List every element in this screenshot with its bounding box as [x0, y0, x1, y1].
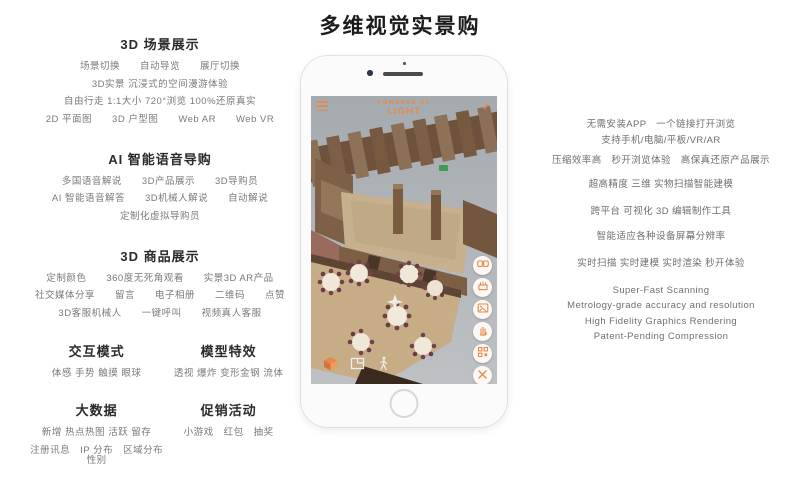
feature-line: High Fidelity Graphics Rendering	[528, 317, 794, 328]
feature-block: 智能适应各种设备屏幕分辨率	[528, 232, 794, 243]
dual-row-bigdata-promo: 大数据 新增 热点热图 活跃 留存 注册讯息 IP 分布 区域分布 性别 促销活…	[28, 400, 292, 473]
feature-block-english: Super-Fast Scanning Metrology-grade accu…	[528, 286, 794, 343]
vr-glasses-icon	[477, 257, 489, 275]
qr-code-icon	[477, 345, 489, 363]
feature-line: 透视 爆炸 变形金钢 流体	[165, 369, 292, 379]
feature-list-right: 无需安装APP 一个链接打开浏览 支持手机/电脑/平板/VR/AR 压缩效率高 …	[528, 120, 794, 352]
section-heading: 3D 场景展示	[28, 34, 292, 53]
dollhouse-view-button[interactable]	[323, 356, 338, 376]
cake-model-icon	[477, 279, 489, 297]
feature-line: 新增 热点热图 活跃 留存	[28, 428, 165, 438]
feature-line: 3D客服机械人 一键呼叫 视频真人客服	[28, 309, 292, 319]
feature-line: 跨平台 可视化 3D 编辑制作工具	[528, 207, 794, 218]
feature-line: 小游戏 红包 抽奖	[165, 428, 292, 438]
3d-scene-viewport[interactable]	[311, 96, 497, 384]
dollhouse-icon	[323, 358, 338, 375]
feature-line: 2D 平面图 3D 户型图 Web AR Web VR	[28, 115, 292, 125]
gesture-button[interactable]	[473, 322, 492, 341]
dual-row-interaction-effects: 交互模式 体感 手势 触摸 眼球 模型特效 透视 爆炸 变形金钢 流体	[28, 341, 292, 387]
section-heading: AI 智能语音导购	[28, 149, 292, 168]
menu-icon	[316, 101, 328, 103]
home-button[interactable]	[390, 389, 419, 418]
landing-page: 多维视觉实景购 3D 场景展示 场景切换 自动导览 展厅切换 3D实景 沉浸式的…	[0, 0, 800, 450]
feature-block: 压缩效率高 秒开浏览体验 高保真还原产品展示	[528, 156, 794, 167]
feature-line: AI 智能语音解答 3D机械人解说 自动解说	[28, 194, 292, 204]
feature-line: 定制颜色 360度无死角观看 实景3D AR产品	[28, 274, 292, 284]
photo-icon	[477, 301, 489, 319]
feature-block: 实时扫描 实时建模 实时渲染 秒开体验	[528, 259, 794, 270]
earpiece-speaker	[383, 72, 423, 76]
feature-block: 无需安装APP 一个链接打开浏览 支持手机/电脑/平板/VR/AR	[528, 120, 794, 146]
share-button[interactable]: ⬈	[480, 100, 492, 112]
section-promotions: 促销活动 小游戏 红包 抽奖	[165, 400, 292, 473]
feature-line: 无需安装APP 一个链接打开浏览	[528, 120, 794, 131]
floorplan-view-button[interactable]	[350, 356, 365, 376]
qr-code-button[interactable]	[473, 344, 492, 363]
hand-icon	[477, 323, 489, 341]
feature-line: 智能适应各种设备屏幕分辨率	[528, 232, 794, 243]
section-heading: 交互模式	[28, 341, 165, 360]
feature-line: 支持手机/电脑/平板/VR/AR	[528, 136, 794, 147]
feature-line: 超高精度 三维 实物扫描智能建模	[528, 180, 794, 191]
section-heading: 模型特效	[165, 341, 292, 360]
section-ai-voice: AI 智能语音导购 多国语音解说 3D产品展示 3D导购员 AI 智能语音解答 …	[28, 149, 292, 222]
section-heading: 3D 商品展示	[28, 246, 292, 265]
feature-line: Patent-Pending Compression	[528, 332, 794, 343]
feature-line: 注册讯息 IP 分布 区域分布 性别	[28, 446, 165, 466]
gallery-button[interactable]	[473, 300, 492, 319]
walkthrough-view-button[interactable]	[377, 356, 390, 376]
close-button[interactable]	[473, 366, 492, 384]
feature-line: 压缩效率高 秒开浏览体验 高保真还原产品展示	[528, 156, 794, 167]
model-showcase-button[interactable]	[473, 278, 492, 297]
feature-line: 社交媒体分享 留言 电子相册 二维码 点赞	[28, 291, 292, 301]
section-interaction-mode: 交互模式 体感 手势 触摸 眼球	[28, 341, 165, 387]
view-mode-bar	[323, 356, 390, 376]
menu-button[interactable]	[316, 101, 328, 111]
floorplan-icon	[350, 358, 365, 375]
feature-line: 3D实景 沉浸式的空间漫游体验	[28, 80, 292, 90]
section-big-data: 大数据 新增 热点热图 活跃 留存 注册讯息 IP 分布 区域分布 性别	[28, 400, 165, 473]
section-3d-scene: 3D 场景展示 场景切换 自动导览 展厅切换 3D实景 沉浸式的空间漫游体验 自…	[28, 34, 292, 125]
feature-line: 实时扫描 实时建模 实时渲染 秒开体验	[528, 259, 794, 270]
close-icon	[477, 367, 488, 385]
feature-line: 自由行走 1:1大小 720°浏览 100%还原真实	[28, 97, 292, 107]
tool-button-column	[473, 256, 492, 384]
vr-mode-button[interactable]	[473, 256, 492, 275]
share-icon: ⬈	[482, 101, 490, 111]
feature-line: Metrology-grade accuracy and resolution	[528, 301, 794, 312]
feature-line: 体感 手势 触摸 眼球	[28, 369, 165, 379]
app-screen: POWERED BY LIGHT ⬈	[311, 96, 497, 384]
front-camera	[367, 70, 373, 76]
feature-list-left: 3D 场景展示 场景切换 自动导览 展厅切换 3D实景 沉浸式的空间漫游体验 自…	[28, 34, 292, 487]
feature-line: Super-Fast Scanning	[528, 286, 794, 297]
section-3d-product: 3D 商品展示 定制颜色 360度无死角观看 实景3D AR产品 社交媒体分享 …	[28, 246, 292, 319]
section-model-effects: 模型特效 透视 爆炸 变形金钢 流体	[165, 341, 292, 387]
section-heading: 促销活动	[165, 400, 292, 419]
feature-line: 多国语音解说 3D产品展示 3D导购员	[28, 177, 292, 187]
walking-person-icon	[377, 358, 390, 375]
feature-line: 场景切换 自动导览 展厅切换	[28, 62, 292, 72]
feature-line: 定制化虚拟导购员	[28, 212, 292, 222]
feature-block: 超高精度 三维 实物扫描智能建模	[528, 180, 794, 191]
feature-block: 跨平台 可视化 3D 编辑制作工具	[528, 207, 794, 218]
section-heading: 大数据	[28, 400, 165, 419]
proximity-sensor-dot	[403, 62, 406, 65]
phone-mockup: POWERED BY LIGHT ⬈	[300, 55, 508, 428]
